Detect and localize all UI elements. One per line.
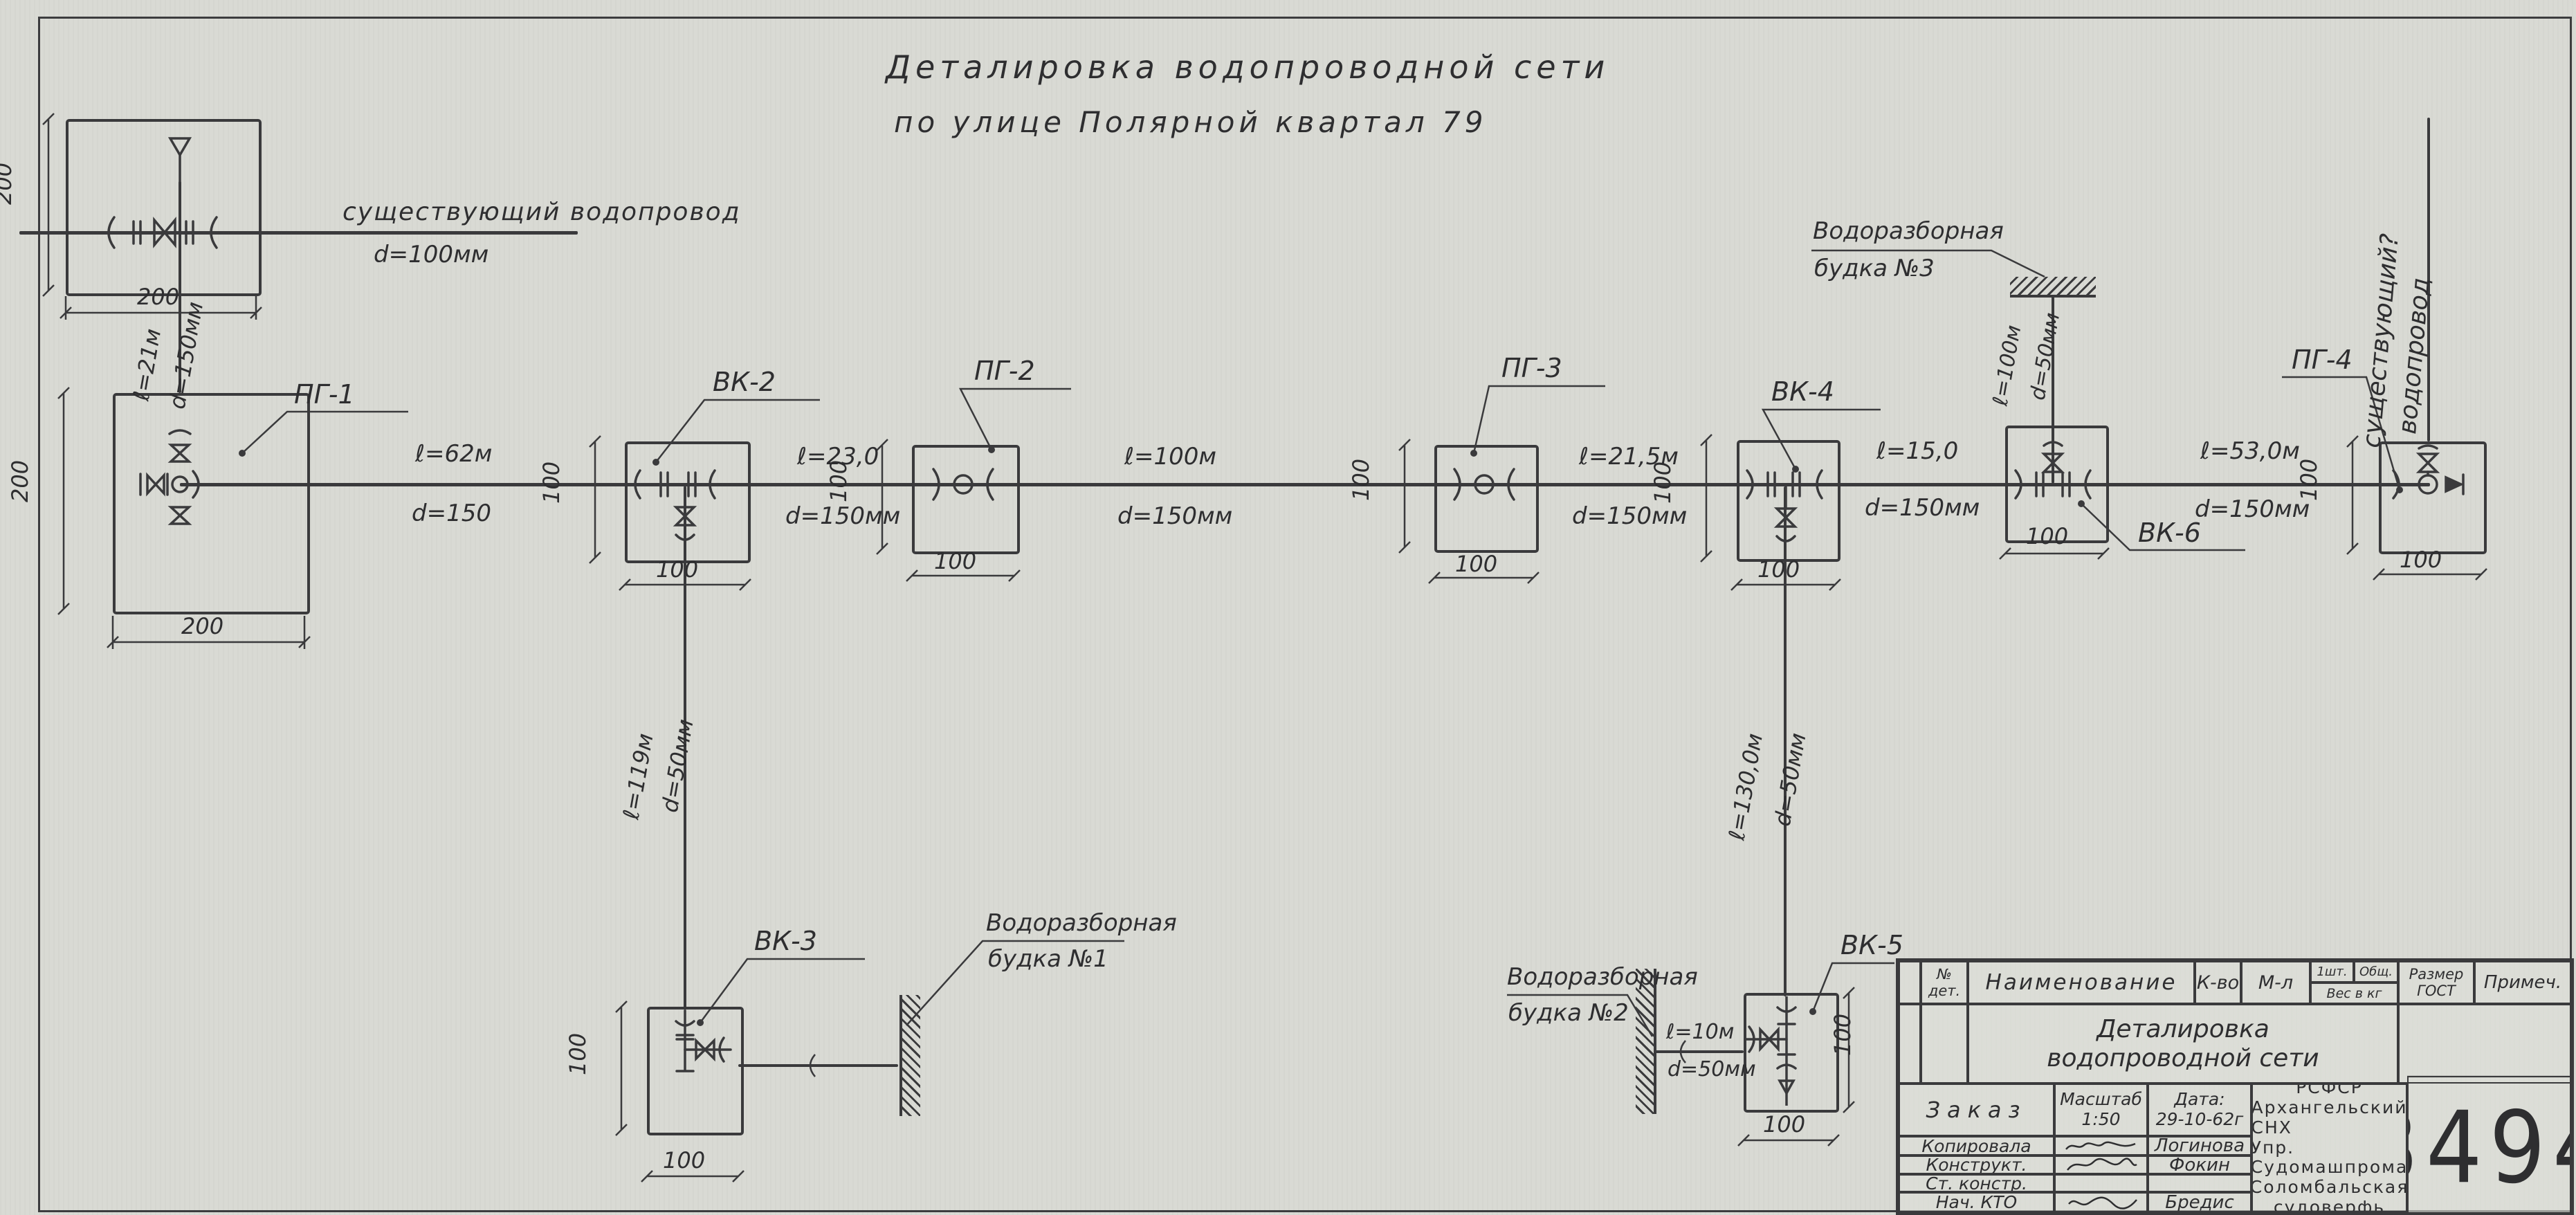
drawing-title-line1: Деталировка водопроводной сети — [886, 48, 1609, 86]
segment-vk4-vk6-length: ℓ=15,0 — [1876, 437, 1958, 465]
node-label-vk6: ВК-6 — [2138, 518, 2201, 548]
dim-vk3-bottom-value: 100 — [663, 1147, 705, 1173]
pipe-booth2-vk5 — [1655, 1050, 1744, 1053]
dim-vk4-left-value: 100 — [1650, 462, 1676, 504]
tb-header-part-no: № дет. — [1921, 961, 1968, 1004]
title-block: № дет. Наименование К-во М-л 1шт. Общ. В… — [1896, 958, 2574, 1215]
well-tee-valve-icon-vk2 — [625, 453, 745, 547]
segment-pg1-vk2-diameter: d=150 — [412, 500, 491, 527]
tb-drawing-number: 3494 — [2407, 1076, 2571, 1215]
segment-pg1-vk2-length: ℓ=62м — [415, 440, 492, 468]
valve-assembly-icon — [88, 212, 233, 253]
well-tee-valve-icon-vk4 — [1737, 453, 1834, 557]
booth2-label-line1: Водоразборная — [1507, 963, 1698, 991]
existing-main-diameter: d=100мм — [374, 241, 488, 268]
dim-vk2-left-value: 100 — [538, 462, 565, 504]
tb-date: Дата: 29-10-62г — [2148, 1084, 2251, 1136]
node-label-vk3: ВК-3 — [754, 926, 817, 956]
node-label-vk2: ВК-2 — [713, 367, 776, 397]
tb-no-label2: дет. — [1928, 983, 1960, 999]
node-label-pg3: ПГ-3 — [1501, 353, 1562, 383]
booth1-label-line1: Водоразборная — [986, 909, 1177, 937]
hydrant-valve-icon-pg4 — [2385, 443, 2475, 533]
tb-row-designer-signature — [2054, 1155, 2148, 1174]
tb-header-per-item: 1шт. — [2310, 961, 2354, 983]
signature-designer-icon — [2063, 1158, 2139, 1173]
tb-row-chief-name: Бредис — [2148, 1192, 2251, 1212]
hydrant-cross-icon-pg1 — [121, 426, 239, 543]
tb-no-label: № — [1937, 966, 1952, 983]
tb-date-label: Дата: — [2174, 1090, 2225, 1110]
tb-row-copied-name: Логинова — [2148, 1136, 2251, 1155]
tb-header-weight: Вес в кг — [2310, 983, 2398, 1004]
vent-flag-icon — [165, 131, 195, 184]
dim-pg2-left-value: 100 — [825, 460, 852, 502]
tb-org-line3: Упр. Судомашпрома — [2251, 1138, 2407, 1178]
tb-size-label1: Размер — [2409, 966, 2464, 983]
signature-chief-icon — [2063, 1194, 2139, 1211]
tb-row-senior-name — [2148, 1174, 2251, 1192]
dim-vk6-bottom-value: 100 — [2026, 523, 2068, 549]
tb-header-total: Общ. — [2354, 961, 2398, 983]
tb-header-qty: К-во — [2195, 961, 2241, 1004]
dim-vk3-left-value: 100 — [565, 1033, 591, 1075]
tb-org-line5: судоверфь — [2274, 1198, 2385, 1212]
segment-vk4-vk6-diameter: d=150мм — [1865, 494, 1980, 522]
tb-scale-label: Масштаб — [2060, 1090, 2142, 1110]
tb-order: Заказ — [1899, 1084, 2054, 1136]
booth2-vk5-diameter: d=50мм — [1668, 1057, 1756, 1081]
tb-row-copied-role: Копировала — [1899, 1136, 2054, 1155]
node-label-pg4: ПГ-4 — [2292, 345, 2353, 375]
tb-date-value: 29-10-62г — [2156, 1110, 2244, 1130]
signature-copied-icon — [2063, 1138, 2139, 1153]
dim-pg1-left-value: 200 — [7, 460, 33, 502]
node-label-vk5: ВК-5 — [1840, 930, 1903, 960]
hydrant-icon-pg2 — [925, 464, 1001, 505]
existing-main-label: существующий водопровод — [342, 198, 741, 226]
dim-chamber-bottom-value: 200 — [137, 284, 179, 310]
tb-org-line1: РСФСР — [2296, 1084, 2363, 1098]
node-label-pg1: ПГ-1 — [294, 379, 355, 410]
drawing-sheet: Деталировка водопроводной сети по улице … — [0, 0, 2576, 1215]
tb-scale-value: 1:50 — [2081, 1110, 2120, 1130]
tb-row-chief-role: Нач. КТО — [1899, 1192, 2054, 1212]
segment-pg2-pg3-length: ℓ=100м — [1124, 443, 1216, 471]
dim-vk5-bottom-value: 100 — [1763, 1111, 1805, 1138]
dim-vk5-right-value: 100 — [1829, 1014, 1856, 1056]
hydrant-icon-pg3 — [1446, 464, 1522, 505]
booth1-label-line2: будка №1 — [988, 945, 1108, 973]
dim-pg1-bottom-value: 200 — [181, 613, 223, 639]
booth3-label-line1: Водоразборная — [1813, 217, 2004, 245]
tb-org-line4: Соломбальская — [2251, 1178, 2407, 1198]
tb-size-label2: ГОСТ — [2417, 983, 2456, 999]
dim-chamber-left-value: 200 — [0, 163, 17, 205]
tb-row-chief-signature — [2054, 1192, 2148, 1212]
tb-doc-name: Деталировка водопроводной сети — [1968, 1004, 2398, 1084]
dim-pg4-left-value: 100 — [2296, 459, 2322, 501]
segment-vk2-pg2-diameter: d=150мм — [785, 502, 900, 530]
dim-pg2-bottom-value: 100 — [934, 548, 976, 574]
tb-row-senior-role: Ст. констр. — [1899, 1174, 2054, 1192]
tb-docname-spacer3 — [2398, 1004, 2571, 1084]
well-tee-valve-icon-vk6 — [2006, 436, 2103, 519]
tb-header-spacer — [1899, 961, 1921, 1004]
dim-pg3-left-value: 100 — [1348, 459, 1374, 501]
segment-vk6-pg4-length: ℓ=53,0м — [2200, 437, 2300, 465]
pipe-vk3-booth1 — [738, 1064, 898, 1067]
dim-vk2-bottom-value: 100 — [656, 556, 698, 583]
dim-pg3-bottom-value: 100 — [1455, 551, 1497, 577]
segment-pg3-vk4-diameter: d=150мм — [1572, 502, 1687, 530]
booth2-label-line2: будка №2 — [1508, 999, 1629, 1027]
tb-row-senior-signature — [2054, 1174, 2148, 1192]
well-valve-icon-vk3 — [643, 1010, 733, 1090]
tb-header-note: Примеч. — [2474, 961, 2571, 1004]
tb-header-name: Наименование — [1968, 961, 2195, 1004]
tb-row-copied-signature — [2054, 1136, 2148, 1155]
well-valve-icon-vk5 — [1744, 996, 1834, 1106]
tb-scale: Масштаб 1:50 — [2054, 1084, 2148, 1136]
booth1-wall-hatch — [899, 995, 920, 1116]
dim-vk4-bottom-value: 100 — [1757, 556, 1800, 583]
tb-doc-name-line1: Деталировка — [2097, 1015, 2269, 1043]
tb-docname-spacer2 — [1921, 1004, 1968, 1084]
tb-header-size-gost: Размер ГОСТ — [2398, 961, 2474, 1004]
segment-pg2-pg3-diameter: d=150мм — [1117, 502, 1232, 530]
booth3-ground-hatch — [2010, 277, 2096, 298]
booth3-label-line2: будка №3 — [1814, 255, 1935, 282]
tb-row-designer-role: Конструкт. — [1899, 1155, 2054, 1174]
tb-row-designer-name: Фокин — [2148, 1155, 2251, 1174]
drawing-title-line2: по улице Полярной квартал 79 — [894, 105, 1488, 139]
tb-org-line2: Архангельский СНХ — [2251, 1098, 2407, 1138]
tb-organization: РСФСР Архангельский СНХ Упр. Судомашпром… — [2251, 1084, 2407, 1212]
node-label-pg2: ПГ-2 — [974, 356, 1035, 386]
node-label-vk4: ВК-4 — [1771, 376, 1834, 407]
dim-pg4-bottom-value: 100 — [2400, 547, 2442, 573]
booth2-vk5-length: ℓ=10м — [1666, 1020, 1734, 1044]
segment-vk6-pg4-diameter: d=150мм — [2195, 495, 2310, 523]
tb-docname-spacer1 — [1899, 1004, 1921, 1084]
well-connection-chamber — [66, 119, 262, 296]
tb-doc-name-line2: водопроводной сети — [2047, 1044, 2319, 1072]
tb-header-material: М-л — [2241, 961, 2310, 1004]
